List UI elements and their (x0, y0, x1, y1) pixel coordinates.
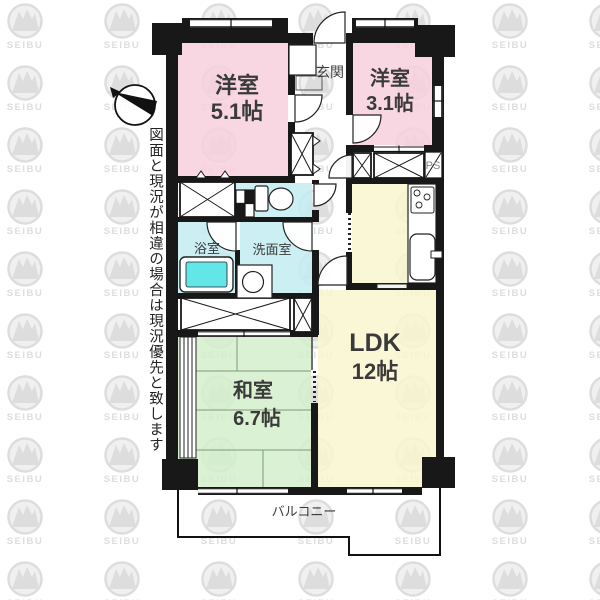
counter-pass-through (377, 284, 407, 289)
pillar-bottom-left (162, 459, 198, 490)
closet-small-hall (353, 153, 371, 178)
shoe-cabinet-icon (289, 45, 316, 75)
label-pipe-space: PS (426, 160, 441, 172)
shutter-strip (180, 337, 196, 458)
door-entrance (314, 12, 345, 43)
door-ldk (318, 256, 347, 285)
label-west-room-3-1-size: 3.1帖 (366, 92, 414, 115)
floorplan-page: SEIBU (0, 0, 600, 600)
label-ldk-name: LDK (349, 329, 400, 357)
pillar-top-right (415, 25, 455, 57)
window-japanese-room (198, 488, 288, 495)
label-west-room-5-1-name: 洋室 (215, 73, 259, 98)
window-west-room-3-1-side (434, 86, 443, 117)
window-west-room-5-1 (190, 19, 272, 28)
door-west-room-5-1 (295, 95, 322, 122)
closet-west-room-3-1 (374, 153, 424, 178)
balcony-outline (178, 488, 440, 555)
label-west-room-3-1-name: 洋室 (370, 66, 410, 90)
faucet-icon (431, 251, 442, 258)
closet-hallway (291, 133, 320, 175)
floorplan-drawing: 洋室 5.1帖 洋室 3.1帖 玄関 浴室 洗面室 PS LDK 12帖 和室 … (0, 0, 600, 600)
label-ldk-size: 12帖 (352, 359, 398, 384)
label-bathroom: 浴室 (194, 241, 220, 256)
label-entrance: 玄関 (316, 64, 344, 80)
window-ldk (347, 488, 402, 495)
label-balcony: バルコニー (272, 504, 337, 519)
label-japanese-room-name: 和室 (233, 378, 273, 402)
bathtub-icon (180, 257, 233, 292)
north-compass-icon (110, 85, 157, 125)
closet-oshiire (181, 298, 290, 330)
sliding-door-oshiire (198, 331, 290, 338)
closet-narrow (294, 298, 312, 332)
pillar-bottom-right (422, 457, 455, 488)
toilet-icon (255, 186, 293, 211)
label-japanese-room-size: 6.7帖 (233, 407, 281, 430)
room-ldk (318, 290, 436, 487)
sliding-door-closet-3-1 (374, 146, 424, 153)
stove-icon (411, 187, 434, 213)
label-washroom: 洗面室 (252, 242, 291, 257)
door-closet-small (329, 155, 352, 178)
pillar-top-left (152, 23, 182, 55)
door-toilet (314, 184, 336, 206)
disclaimer-text: 図面と現況が相違の場合は現況優先と致します (144, 127, 164, 475)
label-west-room-5-1-size: 5.1帖 (211, 99, 264, 124)
duct-boxes (236, 190, 254, 217)
window-west-room-3-1-top (356, 19, 414, 28)
washbasin-icon (237, 265, 272, 298)
